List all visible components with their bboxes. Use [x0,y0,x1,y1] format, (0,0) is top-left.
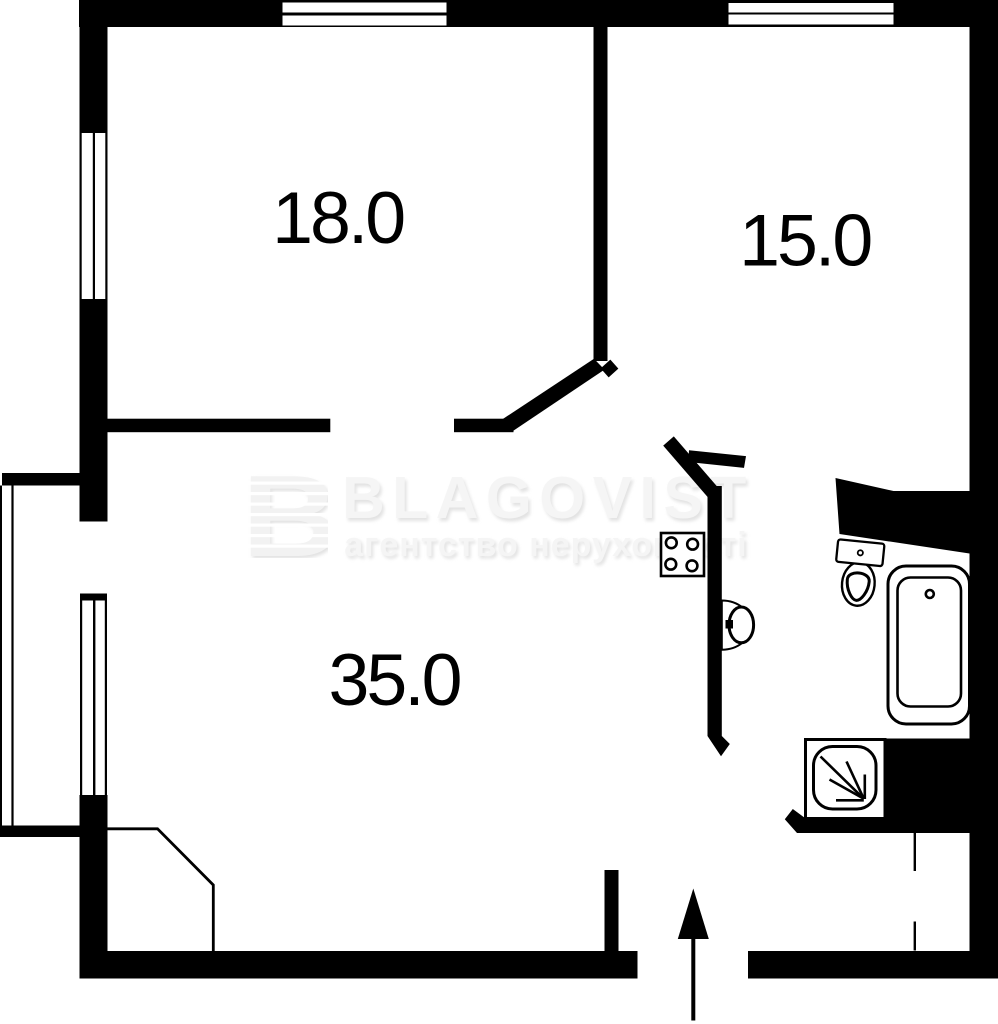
svg-text:35.0: 35.0 [328,638,459,721]
svg-text:15.0: 15.0 [739,199,870,282]
svg-text:18.0: 18.0 [272,176,403,259]
